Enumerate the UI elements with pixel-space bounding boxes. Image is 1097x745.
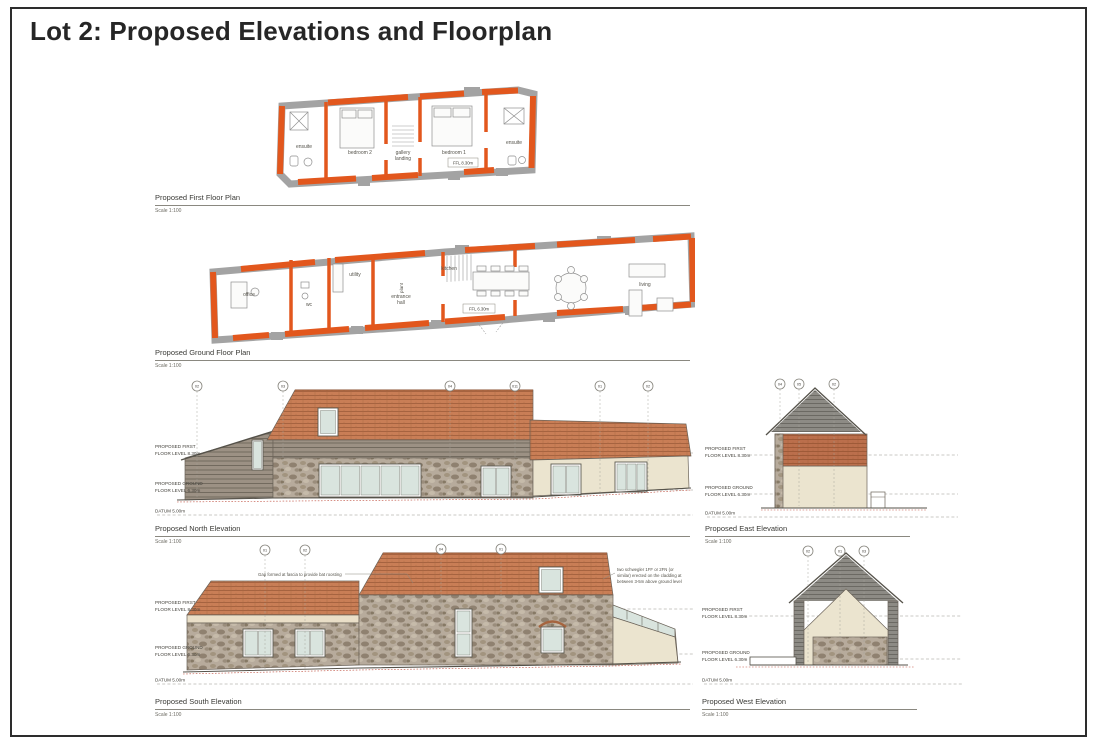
- east-elevation-caption: Proposed East Elevation Scale 1:100: [705, 524, 910, 545]
- svg-text:FLOOR LEVEL 6.30m: FLOOR LEVEL 6.30m: [155, 488, 200, 493]
- drawing-title: Proposed West Elevation: [702, 697, 917, 706]
- svg-text:04: 04: [448, 385, 452, 389]
- side-structure: [871, 492, 885, 508]
- west-elevation-drawing: PROPOSED FIRST FLOOR LEVEL 8.30m PROPOSE…: [702, 543, 964, 693]
- room-label-wc: wc: [306, 302, 313, 308]
- svg-text:02: 02: [832, 383, 836, 387]
- svg-text:04: 04: [778, 383, 782, 387]
- page-title: Lot 2: Proposed Elevations and Floorplan: [30, 16, 552, 47]
- room-label-office: office: [243, 292, 255, 298]
- room-label-bedroom1: bedroom 1: [442, 150, 466, 156]
- drawing-scale: Scale 1:100: [155, 208, 690, 214]
- drawing-title: Proposed South Elevation: [155, 697, 690, 706]
- timber-band: [273, 440, 533, 458]
- north-elevation-building: [177, 390, 691, 502]
- level-labels: PROPOSED FIRST FLOOR LEVEL 8.30m PROPOSE…: [705, 446, 753, 516]
- svg-text:PROPOSED FIRST: PROPOSED FIRST: [155, 600, 196, 605]
- svg-text:DATUM 5.00m: DATUM 5.00m: [705, 511, 735, 516]
- svg-text:FFL 6.30m: FFL 6.30m: [469, 307, 490, 312]
- level-labels: PROPOSED FIRST FLOOR LEVEL 8.30m PROPOSE…: [702, 607, 750, 683]
- stone-base: [813, 637, 887, 665]
- svg-text:PROPOSED FIRST: PROPOSED FIRST: [155, 444, 196, 449]
- svg-text:05: 05: [797, 383, 801, 387]
- first-floor-plan-graphic: [280, 87, 534, 186]
- caption-rule: [155, 360, 690, 361]
- south-elevation-caption: Proposed South Elevation Scale 1:100: [155, 697, 690, 718]
- svg-text:two schwegler 1FF or 2FN (or: two schwegler 1FF or 2FN (or: [617, 567, 674, 572]
- room-label-bedroom2: bedroom 2: [348, 150, 372, 156]
- svg-text:FLOOR LEVEL 6.30m: FLOOR LEVEL 6.30m: [702, 657, 747, 662]
- svg-text:similar) erected on the claddi: similar) erected on the cladding at: [617, 573, 682, 578]
- room-label-ensuite-left: ensuite: [296, 144, 312, 150]
- caption-rule: [155, 205, 690, 206]
- svg-text:PROPOSED FIRST: PROPOSED FIRST: [705, 446, 746, 451]
- caption-rule: [155, 536, 690, 537]
- stone-pier: [775, 434, 783, 508]
- slate-gable: [771, 390, 861, 432]
- retaining-wall: [750, 657, 796, 665]
- west-elevation-building: [736, 553, 914, 667]
- drawing-scale: Scale 1:100: [155, 363, 690, 369]
- glazed-door: [481, 466, 511, 497]
- svg-text:011: 011: [512, 385, 518, 389]
- schwegler-note: two schwegler 1FF or 2FN (or similar) er…: [603, 567, 682, 584]
- room-label-ensuite-right: ensuite: [506, 140, 522, 146]
- north-elevation-caption: Proposed North Elevation Scale 1:100: [155, 524, 690, 545]
- svg-text:PROPOSED GROUND: PROPOSED GROUND: [155, 645, 203, 650]
- glazed-sliding-doors: [319, 464, 421, 497]
- svg-text:04: 04: [439, 548, 443, 552]
- slate-pier-left: [794, 601, 804, 665]
- svg-text:DATUM 5.00m: DATUM 5.00m: [155, 509, 185, 514]
- svg-text:Gap formed at fascia to provid: Gap formed at fascia to provide bat roos…: [258, 572, 342, 577]
- svg-text:DATUM 5.00m: DATUM 5.00m: [702, 678, 732, 683]
- east-elevation-building: [761, 388, 927, 510]
- svg-text:PROPOSED GROUND: PROPOSED GROUND: [702, 650, 750, 655]
- svg-text:between 3-5m above ground leve: between 3-5m above ground level: [617, 579, 682, 584]
- svg-text:03: 03: [862, 550, 866, 554]
- drawing-title: Proposed First Floor Plan: [155, 193, 690, 202]
- utility-counter: [333, 264, 343, 292]
- ffl-tag-ground-floor: FFL 6.30m: [463, 304, 495, 313]
- caption-rule: [702, 709, 917, 710]
- room-label-plant: plant: [399, 282, 404, 293]
- svg-text:FLOOR LEVEL 8.30m: FLOOR LEVEL 8.30m: [155, 607, 200, 612]
- svg-text:PROPOSED GROUND: PROPOSED GROUND: [705, 485, 753, 490]
- first-floor-plan-drawing: ensuite bedroom 2 gallery landing bedroo…: [268, 84, 540, 190]
- north-elevation-drawing: PROPOSED FIRST FLOOR LEVEL 8.30m PROPOSE…: [155, 376, 695, 522]
- lean-to-glazing: [613, 605, 678, 665]
- west-elevation-caption: Proposed West Elevation Scale 1:100: [702, 697, 917, 718]
- brick-band: [775, 434, 867, 466]
- svg-text:03: 03: [281, 385, 285, 389]
- svg-text:FLOOR LEVEL 8.30m: FLOOR LEVEL 8.30m: [155, 451, 200, 456]
- svg-text:PROPOSED FIRST: PROPOSED FIRST: [702, 607, 743, 612]
- room-label-utility: utility: [349, 272, 361, 278]
- drawing-title: Proposed North Elevation: [155, 524, 690, 533]
- svg-text:FLOOR LEVEL 8.30m: FLOOR LEVEL 8.30m: [702, 614, 747, 619]
- svg-text:FLOOR LEVEL 6.30m: FLOOR LEVEL 6.30m: [155, 652, 200, 657]
- svg-text:PROPOSED GROUND: PROPOSED GROUND: [155, 481, 203, 486]
- drawing-scale: Scale 1:100: [702, 712, 917, 718]
- drawing-scale: Scale 1:100: [155, 712, 690, 718]
- ground-floor-plan-caption: Proposed Ground Floor Plan Scale 1:100: [155, 348, 690, 369]
- main-roof: [267, 390, 533, 440]
- main-stone-wall: [359, 595, 613, 665]
- caption-rule: [155, 709, 690, 710]
- svg-text:02: 02: [303, 549, 307, 553]
- drawing-title: Proposed Ground Floor Plan: [155, 348, 690, 357]
- room-label-kitchen: kitchen: [441, 266, 457, 272]
- wing-roof: [530, 420, 691, 460]
- svg-text:FLOOR LEVEL 6.30m: FLOOR LEVEL 6.30m: [705, 492, 750, 497]
- svg-text:02: 02: [646, 385, 650, 389]
- room-label-hall: hall: [397, 300, 405, 306]
- svg-text:FFL 8.30m: FFL 8.30m: [453, 161, 474, 166]
- svg-text:01: 01: [499, 548, 503, 552]
- ground-floor-plan-graphic: [213, 236, 693, 340]
- svg-text:DATUM 5.00m: DATUM 5.00m: [155, 678, 185, 683]
- svg-text:02: 02: [195, 385, 199, 389]
- drawing-title: Proposed East Elevation: [705, 524, 910, 533]
- east-elevation-drawing: PROPOSED FIRST FLOOR LEVEL 8.30m PROPOSE…: [705, 376, 960, 522]
- slate-pier-right: [888, 601, 898, 665]
- south-elevation-drawing: Gap formed at fascia to provide bat roos…: [155, 543, 695, 693]
- first-floor-plan-caption: Proposed First Floor Plan Scale 1:100: [155, 193, 690, 214]
- svg-text:FLOOR LEVEL 8.30m: FLOOR LEVEL 8.30m: [705, 453, 750, 458]
- svg-text:01: 01: [598, 385, 602, 389]
- svg-text:01: 01: [263, 549, 267, 553]
- caption-rule: [705, 536, 910, 537]
- fascia-band: [187, 615, 359, 623]
- render-ground-floor: [775, 466, 867, 508]
- ground-floor-plan-drawing: office wc utility plant entrance hall ki…: [205, 230, 695, 346]
- room-label-living: living: [639, 282, 651, 288]
- room-label-landing: landing: [395, 156, 411, 162]
- wing-roof: [187, 581, 359, 615]
- ffl-tag-first-floor: FFL 8.30m: [448, 158, 478, 167]
- svg-text:01: 01: [838, 550, 842, 554]
- svg-text:02: 02: [806, 550, 810, 554]
